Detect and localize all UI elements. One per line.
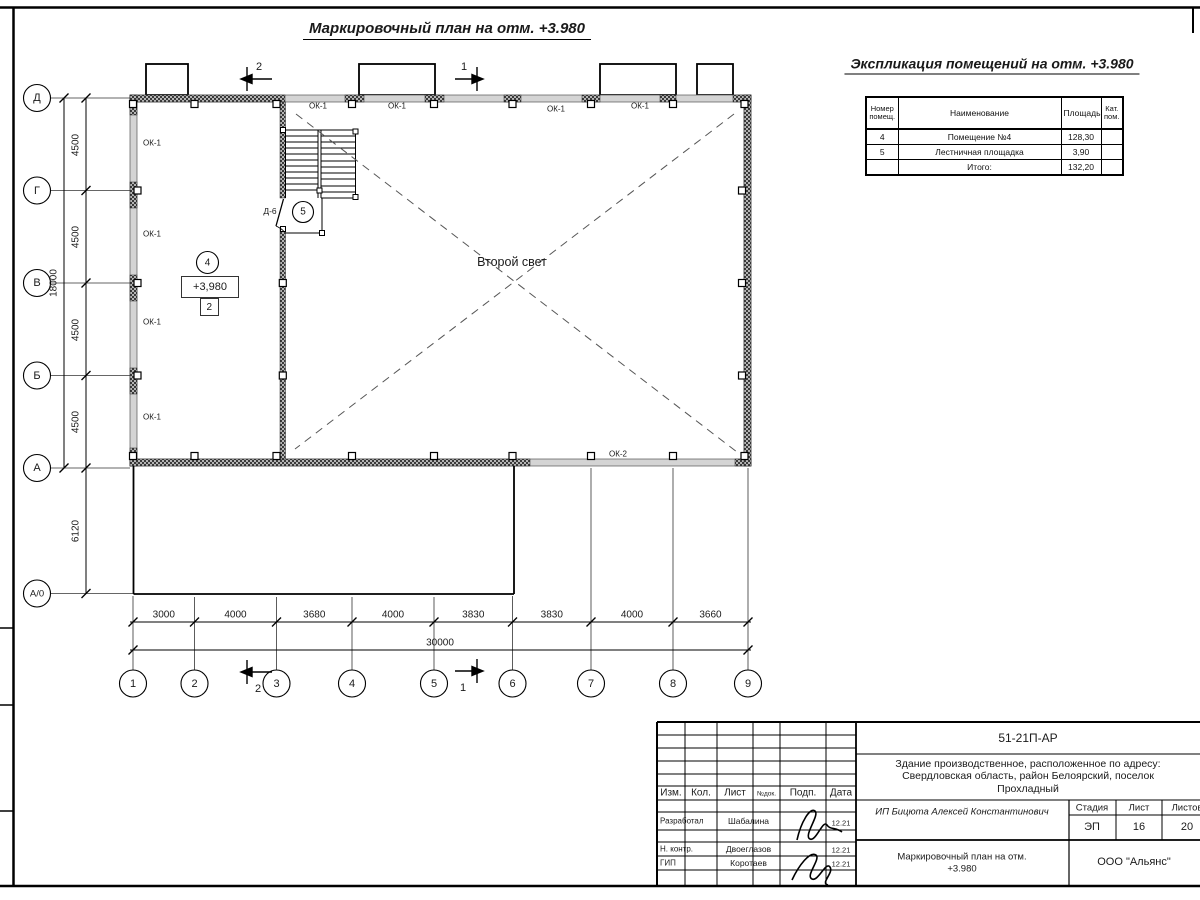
axis-col-4: 4 bbox=[349, 678, 355, 690]
table-row: 5 Лестничная площадка 3,90 bbox=[866, 145, 1123, 160]
date-gip: 12.21 bbox=[832, 860, 851, 869]
table-total-row: Итого: 132,20 bbox=[866, 160, 1123, 176]
axis-col-5: 5 bbox=[431, 678, 437, 690]
name-developed: Шабалина bbox=[728, 816, 769, 826]
drawing-sheet: Маркировочный план на отм. +3.980 Экспли… bbox=[0, 0, 1200, 900]
dim-v-lower: 6120 bbox=[71, 520, 82, 542]
col-data: Дата bbox=[830, 788, 852, 799]
sheets-total: 20 bbox=[1181, 821, 1193, 833]
company-name: ООО "Альянс" bbox=[1097, 856, 1171, 868]
window-mark-ok1: ОК-1 bbox=[309, 102, 327, 111]
table-row: 4 Помещение №4 128,30 bbox=[866, 129, 1123, 145]
dim-v-3: 4500 bbox=[71, 318, 82, 340]
window-mark-ok1: ОК-1 bbox=[143, 413, 161, 422]
section-label-1: 1 bbox=[460, 682, 466, 694]
room-cat bbox=[1101, 129, 1123, 145]
room-num: 4 bbox=[866, 129, 898, 145]
project-name-line: Прохладный bbox=[997, 783, 1059, 795]
dim-v-total: 18000 bbox=[49, 269, 60, 297]
total-label: Итого: bbox=[898, 160, 1061, 176]
dim-h-8: 3660 bbox=[699, 610, 721, 621]
room-area: 3,90 bbox=[1061, 145, 1101, 160]
sheet-number: 16 bbox=[1133, 821, 1145, 833]
axis-row-a: А bbox=[33, 462, 40, 474]
date-ncontrol: 12.21 bbox=[832, 846, 851, 855]
dim-h-5: 3830 bbox=[462, 610, 484, 621]
window-mark-ok1: ОК-1 bbox=[143, 139, 161, 148]
axis-row-b: Б bbox=[33, 370, 40, 382]
total-area: 132,20 bbox=[1061, 160, 1101, 176]
explication-table: Номер помещ. Наименование Площадь Кат. п… bbox=[865, 96, 1124, 176]
date-developed: 12.21 bbox=[832, 819, 851, 828]
col-ndok: №док. bbox=[757, 790, 776, 797]
axis-col-9: 9 bbox=[745, 678, 751, 690]
door-mark-d6: Д-6 bbox=[263, 206, 276, 216]
col-header-num: Номер помещ. bbox=[866, 97, 898, 129]
room-num: 5 bbox=[866, 145, 898, 160]
dimension-lines bbox=[60, 94, 753, 655]
col-list: Лист bbox=[724, 788, 746, 799]
dim-h-1: 3000 bbox=[153, 610, 175, 621]
axis-row-a0: А/0 bbox=[30, 588, 44, 599]
client-name: ИП Бицюта Алексей Константинович bbox=[875, 807, 1048, 818]
section-label-1: 1 bbox=[461, 61, 467, 73]
window-mark-ok2: ОК-2 bbox=[609, 450, 627, 459]
void-cross-lines bbox=[295, 114, 737, 452]
stage-value: ЭП bbox=[1084, 821, 1100, 833]
drawing-name-line: +3.980 bbox=[947, 863, 976, 874]
stage-label: Стадия bbox=[1076, 802, 1108, 813]
col-header-cat: Кат. пом. bbox=[1101, 97, 1123, 129]
elevation-mark: +3,980 bbox=[181, 276, 239, 299]
roof-protrusions bbox=[146, 64, 733, 95]
room-name: Помещение №4 bbox=[898, 129, 1061, 145]
window-mark-ok1: ОК-1 bbox=[631, 102, 649, 111]
room-area: 128,30 bbox=[1061, 129, 1101, 145]
section-markers bbox=[241, 67, 483, 684]
window-mark-ok1: ОК-1 bbox=[143, 318, 161, 327]
zone-mark: 2 bbox=[200, 298, 220, 316]
staircase bbox=[281, 128, 359, 236]
role-ncontrol: Н. контр. bbox=[660, 845, 693, 854]
dim-h-7: 4000 bbox=[621, 610, 643, 621]
annex-outline bbox=[134, 466, 515, 594]
col-kol: Кол. bbox=[691, 788, 711, 799]
dim-v-1: 4500 bbox=[71, 133, 82, 155]
room-4-tag: 4 bbox=[205, 257, 211, 268]
axis-row-v: В bbox=[33, 277, 40, 289]
section-label-2: 2 bbox=[256, 61, 262, 73]
axis-col-1: 1 bbox=[130, 678, 136, 690]
room-name: Лестничная площадка bbox=[898, 145, 1061, 160]
window-mark-ok1: ОК-1 bbox=[143, 230, 161, 239]
window-mark-ok1: ОК-1 bbox=[388, 102, 406, 111]
doc-number: 51-21П-АР bbox=[998, 731, 1057, 745]
axis-col-2: 2 bbox=[191, 678, 197, 690]
room-cat bbox=[1101, 145, 1123, 160]
dim-h-4: 4000 bbox=[382, 610, 404, 621]
project-name-line: Здание производственное, расположенное п… bbox=[895, 758, 1160, 770]
col-header-area: Площадь bbox=[1061, 97, 1101, 129]
axis-col-3: 3 bbox=[273, 678, 279, 690]
dim-h-2: 4000 bbox=[224, 610, 246, 621]
window-mark-ok1: ОК-1 bbox=[547, 105, 565, 114]
role-developed: Разработал bbox=[660, 817, 704, 826]
axis-col-6: 6 bbox=[509, 678, 515, 690]
col-izm: Изм. bbox=[660, 788, 681, 799]
col-header-name: Наименование bbox=[898, 97, 1061, 129]
name-ncontrol: Двоеглазов bbox=[726, 844, 771, 854]
room-5-tag: 5 bbox=[300, 207, 306, 218]
dim-h-total: 30000 bbox=[426, 638, 454, 649]
dim-h-6: 3830 bbox=[541, 610, 563, 621]
axis-col-8: 8 bbox=[670, 678, 676, 690]
dim-v-2: 4500 bbox=[71, 226, 82, 248]
drawing-title: Маркировочный план на отм. +3.980 bbox=[303, 20, 591, 40]
sheet-label: Лист bbox=[1129, 802, 1150, 813]
dim-v-4: 4500 bbox=[71, 411, 82, 433]
col-podp: Подп. bbox=[790, 788, 817, 799]
axis-row-d: Д bbox=[33, 92, 40, 104]
sheets-label: Листов bbox=[1172, 802, 1200, 813]
dim-h-3: 3680 bbox=[303, 610, 325, 621]
axis-row-g: Г bbox=[34, 185, 40, 197]
role-gip: ГИП bbox=[660, 859, 676, 868]
project-name-line: Свердловская область, район Белоярский, … bbox=[902, 770, 1154, 782]
section-label-2: 2 bbox=[255, 683, 261, 695]
axis-col-7: 7 bbox=[588, 678, 594, 690]
drawing-name-line: Маркировочный план на отм. bbox=[897, 851, 1026, 862]
second-light-label: Второй свет bbox=[477, 255, 547, 269]
name-gip: Коротаев bbox=[730, 858, 767, 868]
explication-title: Экспликация помещений на отм. +3.980 bbox=[844, 56, 1139, 75]
